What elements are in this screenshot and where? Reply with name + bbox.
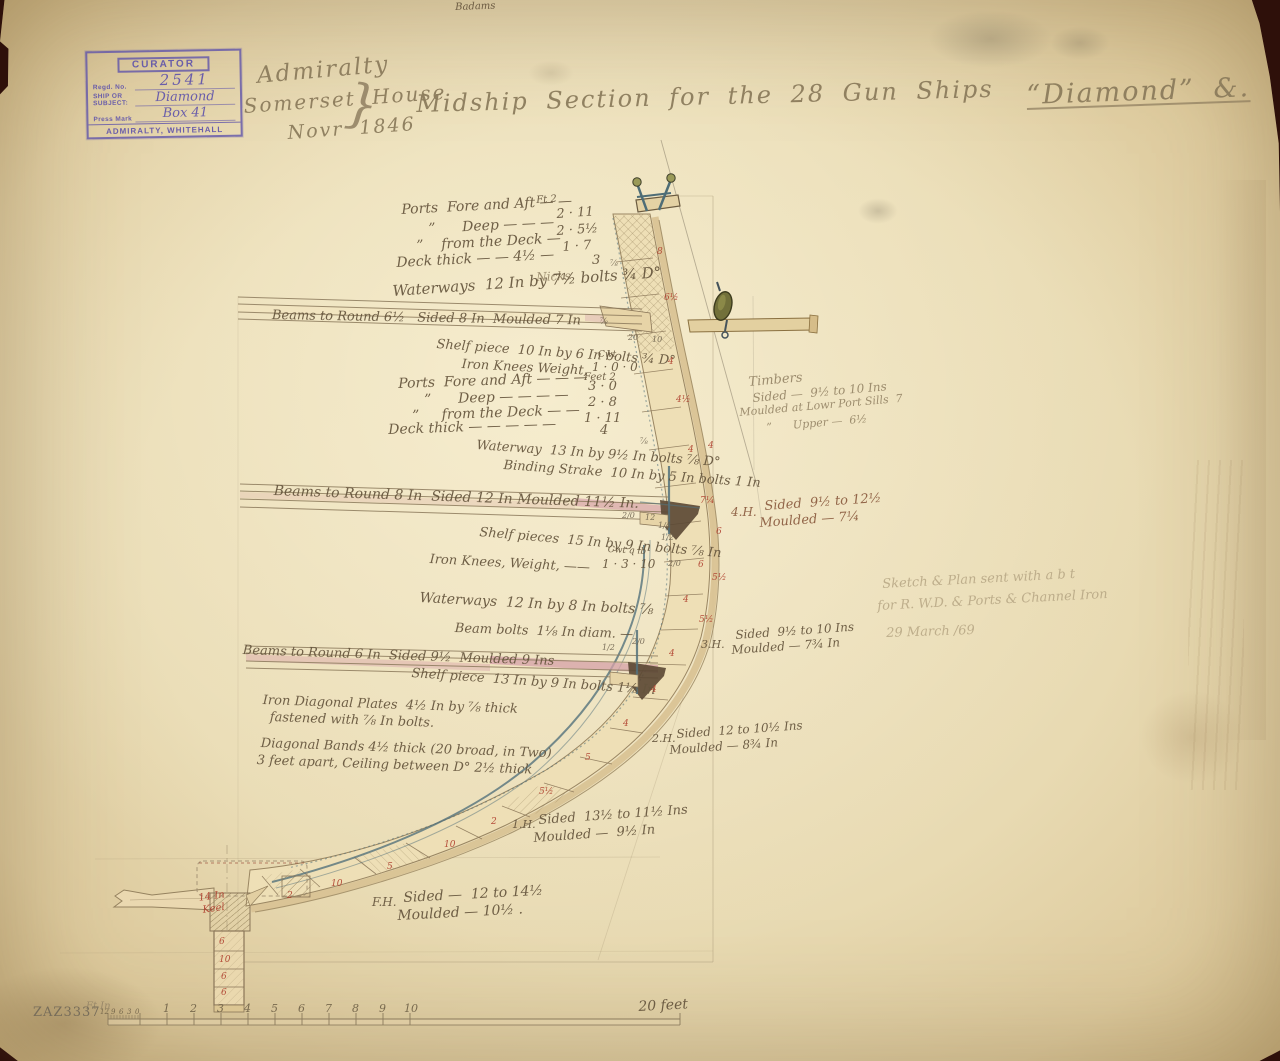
red-dimension: 7¼ <box>700 497 714 506</box>
stamp-ship-value: Diamond <box>135 90 235 107</box>
catalog-number: ZAZ3337 <box>33 1006 101 1020</box>
dimension-mark: 1/2 <box>661 534 674 542</box>
scale-number: 4 <box>244 1003 251 1015</box>
red-dimension: 5½ <box>539 788 553 797</box>
red-dimension: 4 <box>668 358 674 367</box>
channel-spar <box>688 318 814 332</box>
scale-number: 3 <box>127 1009 131 1016</box>
annotation: 2 · 5½ <box>556 222 598 239</box>
scale-number: 5 <box>271 1003 278 1015</box>
red-dimension: 6 <box>221 973 227 982</box>
stamp-press-label: Press Mark <box>93 115 135 123</box>
annotation: 2 · 8 <box>588 396 617 410</box>
red-dimension: 5 <box>585 754 591 763</box>
dimension-mark: 2/0 <box>632 638 645 646</box>
scale-number: 0 <box>135 1009 139 1016</box>
dimension-mark: 1/2 <box>602 644 615 652</box>
red-dimension: 4 <box>708 442 714 451</box>
stamp-press-row: Press Mark Box 41 <box>88 106 240 124</box>
red-dimension: 6 <box>698 561 704 570</box>
annotation: 3.H. <box>701 639 725 651</box>
stamp-regd-value: 2541 <box>135 72 235 91</box>
stanchion-finial <box>667 174 675 182</box>
red-dimension: 6 <box>716 528 722 537</box>
red-dimension: 2 <box>287 892 293 901</box>
red-dimension: 5 <box>387 863 393 872</box>
dimension-mark: ⅞ <box>640 438 648 446</box>
red-dimension: 4 <box>623 720 629 729</box>
annotation: 4.H. <box>731 506 757 519</box>
annotation: 1 · 7 <box>562 239 592 255</box>
annotation: 4 <box>600 424 608 438</box>
red-dimension: 6½ <box>664 294 678 303</box>
stamp-regd-label: Regd. No. <box>93 83 135 91</box>
red-dimension: 10 <box>444 841 455 850</box>
dimension-mark: 12 <box>645 514 655 522</box>
red-dimension: 8 <box>657 248 663 257</box>
dimension-mark: 10 <box>652 336 662 344</box>
red-dimension: 6 <box>221 989 227 998</box>
dimension-mark: 2/0 <box>622 512 635 520</box>
annotation: F.H. <box>372 896 397 909</box>
annotation: Cwt q lb <box>608 546 647 557</box>
curator-stamp: CURATOR Regd. No. 2541 SHIP ORSUBJECT: D… <box>85 49 243 140</box>
scale-number: 8 <box>352 1003 359 1015</box>
scale-number: 3 <box>217 1003 224 1015</box>
title-flourish: } <box>342 76 381 134</box>
red-dimension: 6 <box>219 938 225 947</box>
pencil-note: 29 March /69 <box>886 624 975 641</box>
scale-number: 1 <box>163 1003 170 1015</box>
stamp-press-value: Box 41 <box>135 106 235 123</box>
red-dimension: 5½ <box>699 616 713 625</box>
scale-number: 6 <box>119 1009 123 1016</box>
scale-number: 9 <box>111 1009 115 1016</box>
scale-number: 9 <box>379 1003 386 1015</box>
red-dimension: 4½ <box>676 396 690 405</box>
annotation: 2 · 11 <box>556 205 594 221</box>
red-dimension: 4 <box>683 596 689 605</box>
red-dimension: 2 <box>491 818 497 827</box>
annotation: 3 <box>592 254 600 268</box>
red-dimension: 10 <box>331 880 342 889</box>
hammock-rail <box>633 174 680 212</box>
red-dimension: 4 <box>688 446 694 455</box>
stamp-ship-label: SHIP ORSUBJECT: <box>93 92 135 107</box>
block-ring <box>722 332 728 338</box>
dimension-mark: 1/4 <box>658 522 671 530</box>
dimension-mark: 20 <box>628 334 638 342</box>
midship-section-drawing <box>0 0 1280 1061</box>
annotation: 1.H. <box>512 819 536 831</box>
stamp-footer: ADMIRALTY, WHITEHALL <box>89 122 241 138</box>
stamp-ship-row: SHIP ORSUBJECT: Diamond <box>88 90 240 108</box>
scale-number: 2 <box>190 1003 197 1015</box>
red-dimension: 10 <box>219 956 230 965</box>
red-dimension: 4 <box>651 686 657 695</box>
stamp-regd-row: Regd. No. 2541 <box>88 72 240 92</box>
annotation: 1 · 3 · 10 <box>602 558 655 571</box>
scale-end-label: 20 feet <box>638 997 688 1014</box>
scanned-ship-plan: CURATOR Regd. No. 2541 SHIP ORSUBJECT: D… <box>0 0 1280 1061</box>
scale-number: 10 <box>404 1003 418 1015</box>
stanchion-finial <box>633 178 641 186</box>
scale-number: 6 <box>298 1003 305 1015</box>
dimension-mark: 2/0 <box>668 560 681 568</box>
dimension-mark: ⅞ <box>610 260 618 268</box>
scale-number: 7 <box>325 1003 332 1015</box>
pencil-scribble: Badams <box>455 2 496 14</box>
red-dimension: 5½ <box>712 574 726 583</box>
annotation: 3 · 0 <box>588 380 617 394</box>
dimension-mark: ⅞ <box>600 318 608 326</box>
red-dimension: 4 <box>669 650 675 659</box>
scale-number: 12 <box>100 1009 109 1016</box>
